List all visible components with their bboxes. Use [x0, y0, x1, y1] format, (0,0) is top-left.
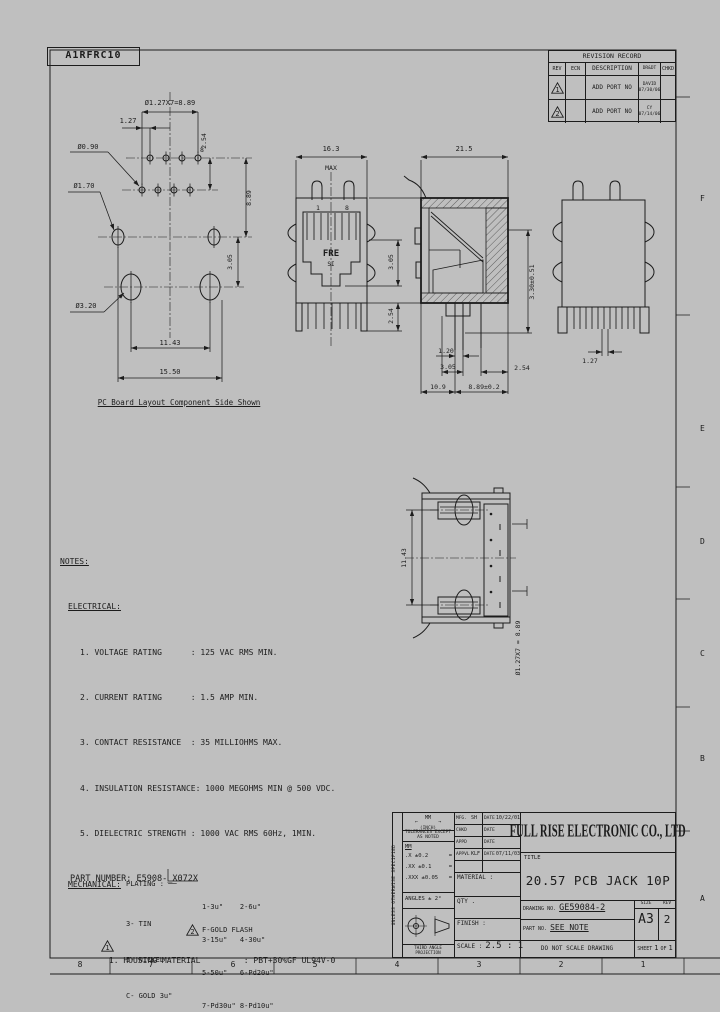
scale-cell: SCALE : 2.5 : 1 — [457, 941, 523, 951]
angles-tolerance: ANGLES ± 2° — [405, 896, 453, 902]
pin-number-label: 8 — [200, 146, 204, 154]
note-line: 5. DIELECTRIC STRENGTH : 1000 VAC RMS 60… — [60, 826, 400, 841]
side-section-view: 21.5 — [404, 145, 536, 394]
svg-text:2: 2 — [555, 110, 559, 118]
zone-letter: A — [700, 894, 714, 903]
arrow-right-icon: → — [438, 819, 441, 825]
dim-one-pitch-label: 1.27 — [120, 117, 137, 125]
revision-table: REVISION RECORD REV ECN DESCRIPTION DR&D… — [548, 50, 676, 122]
zone-letter: E — [700, 424, 714, 433]
revision-triangle-icon: 1 — [551, 82, 564, 94]
drawing-stamp: A1RFRC10 — [47, 47, 140, 66]
dim-rows-to-posts-label: 8.89 — [245, 190, 253, 206]
header-drdt: DR&DT — [639, 63, 661, 75]
drawing-title: 20.57 PCB JACK 10P — [520, 870, 676, 889]
header-chkd: CHKD — [661, 63, 675, 75]
revision-row: 1 ADD PORT NO DAVID07/30/06 — [549, 76, 675, 100]
sheet-cell: SHEET 1 OF 1 — [634, 944, 676, 952]
revision-triangle-icon: 2 — [186, 924, 199, 936]
dia-peg-hole-label: Ø3.20 — [75, 302, 96, 310]
revision-by-date: DAVID07/30/06 — [639, 76, 661, 99]
front-view: 16.3 MAX 1 8 FRE SI — [288, 145, 421, 348]
zone-number: 1 — [635, 960, 651, 969]
fre-logo-sub: SI — [327, 261, 335, 268]
side-dim-a-label: 3.05 — [440, 363, 456, 371]
front-dim-upper-label: 3.05 — [387, 254, 395, 270]
dia-post-hole-label: Ø1.70 — [73, 182, 94, 190]
electrical-header: ELECTRICAL: — [60, 599, 400, 614]
qty-label: QTY . — [457, 898, 475, 905]
zone-letter: B — [700, 754, 714, 763]
bottom-view: 11.43 Ø1.27X7 = 8.89 — [400, 478, 527, 675]
dim-peg-span-label: 11.43 — [159, 339, 180, 347]
svg-text:1: 1 — [105, 944, 109, 952]
pin-first-label: 1 — [316, 204, 320, 212]
drawing-no-cell: DRAWING NO. GE59084-2 — [523, 903, 605, 913]
dim-height-label: 3.30±0.51 — [528, 264, 536, 299]
rev-label: REV — [658, 901, 676, 906]
pin-last-label: 8 — [345, 204, 349, 212]
part-number-block: PART NUMBER: E5908-_X072X PLATING : ── 3… — [70, 858, 360, 944]
dim-width-qual-label: MAX — [325, 164, 337, 172]
header-description: DESCRIPTION — [586, 63, 639, 75]
do-not-scale-note: DO NOT SCALE DRAWING — [520, 945, 634, 952]
dim-posts-to-pegs-label: 3.05 — [226, 254, 234, 270]
note-line: 1. VOLTAGE RATING : 125 VAC RMS MIN. — [60, 645, 400, 660]
pcb-layout-caption: PC Board Layout Component Side Shown — [86, 398, 272, 407]
engineering-drawing-sheet: Ø1.27X7=8.89 1.27 2.54 8 8.89 3.05 11.43 — [0, 0, 720, 1012]
revision-triangle-icon: 2 — [551, 106, 564, 118]
note-line: 4. INSULATION RESISTANCE: 1000 MEGOHMS M… — [60, 781, 400, 796]
plating-label: PLATING : ── — [126, 880, 177, 888]
flash-option: 2 F-GOLD FLASH — [186, 924, 253, 936]
fre-logo: FRE — [323, 249, 339, 259]
tolerance-note: TOLERANCES EXCEPT AS NOTED — [403, 831, 453, 841]
dia-pin-hole-label: Ø0.90 — [77, 143, 98, 151]
bottom-dim-span-label: 11.43 — [400, 548, 408, 568]
approval-row: APPVLKLF DATE07/11/03 — [455, 848, 520, 860]
bottom-dim-pitch-label: Ø1.27X7 = 8.89 — [514, 621, 522, 676]
note-line: 2. CURRENT RATING : 1.5 AMP MIN. — [60, 690, 400, 705]
zone-letter: D — [700, 537, 714, 546]
dim-width-label: 16.3 — [323, 145, 340, 153]
title-label: TITLE — [524, 855, 541, 861]
dim-pin-offset-label: 1.20 — [438, 347, 454, 355]
projection-symbol — [403, 908, 453, 944]
company-cell: FULL RISE ELECTRONIC CO., LTD — [520, 812, 676, 852]
gold-options: 1-3u" 2-6u" 3-15u" 4-30u" 5-50u" 6-Pd20u… — [202, 880, 274, 1012]
svg-text:2: 2 — [190, 928, 194, 936]
side-dim-b-label: 2.54 — [514, 364, 530, 372]
material-label: MATERIAL : — [457, 874, 493, 881]
third-angle-projection-icon — [404, 910, 452, 942]
notes-header: NOTES: — [60, 554, 400, 569]
zone-letter: F — [700, 194, 714, 203]
front-dim-lower-label: 2.54 — [387, 308, 395, 324]
revision-table-title: REVISION RECORD — [549, 51, 675, 63]
tolerance-rows: MM .X ±0.2= .XX ±0.1= .XXX ±0.05= — [405, 843, 452, 884]
company-name: FULL RISE ELECTRONIC CO., LTD — [510, 823, 686, 842]
dim-pitch-label: Ø1.27X7=8.89 — [145, 99, 196, 107]
unit-mm: MM — [425, 815, 431, 821]
header-ecn: ECN — [566, 63, 586, 75]
projection-label: THIRD ANGLE PROJECTION — [403, 945, 453, 955]
plating-codes: 3- TIN 5- NICKEL C- GOLD 3u" — [126, 894, 172, 1012]
zone-number: 2 — [553, 960, 569, 969]
revision-description: ADD PORT NO — [586, 76, 639, 99]
header-rev: REV — [549, 63, 566, 75]
size-value: A3 — [634, 912, 658, 927]
dim-overall-label: 15.50 — [159, 368, 180, 376]
dim-depth-label: 21.5 — [456, 145, 473, 153]
size-label: SIZE — [634, 901, 658, 906]
arrow-left-icon: ← — [415, 819, 418, 825]
rev-value: 2 — [658, 913, 676, 926]
svg-text:1: 1 — [555, 86, 559, 94]
revision-description: ADD PORT NO — [586, 100, 639, 123]
part-no-cell: PART NO. SEE NOTE — [523, 923, 589, 932]
note-line: 3. CONTACT RESISTANCE : 35 MILLIOHMS MAX… — [60, 735, 400, 750]
title-block-side-note: UNLESS OTHERWISE SPECIFIED — [392, 815, 402, 955]
rear-view: 1.27 — [553, 181, 654, 365]
unit-cell: ← MM (INCH) → — [403, 813, 453, 830]
revision-by-date: CY07/14/06 — [639, 100, 661, 123]
finish-label: FINISH : — [457, 920, 486, 927]
zone-letter: C — [700, 649, 714, 658]
pcb-layout-view: Ø1.27X7=8.89 1.27 2.54 8 8.89 3.05 11.43 — [68, 92, 253, 382]
zone-number: 3 — [471, 960, 487, 969]
revision-row: 2 ADD PORT NO CY07/14/06 — [549, 100, 675, 123]
dim-front-label: 10.9 — [430, 383, 446, 391]
rear-dim-pitch-label: 1.27 — [582, 357, 598, 365]
revision-table-header: REV ECN DESCRIPTION DR&DT CHKD — [549, 63, 675, 76]
dim-span-label: 8.89±0.2 — [468, 383, 499, 391]
